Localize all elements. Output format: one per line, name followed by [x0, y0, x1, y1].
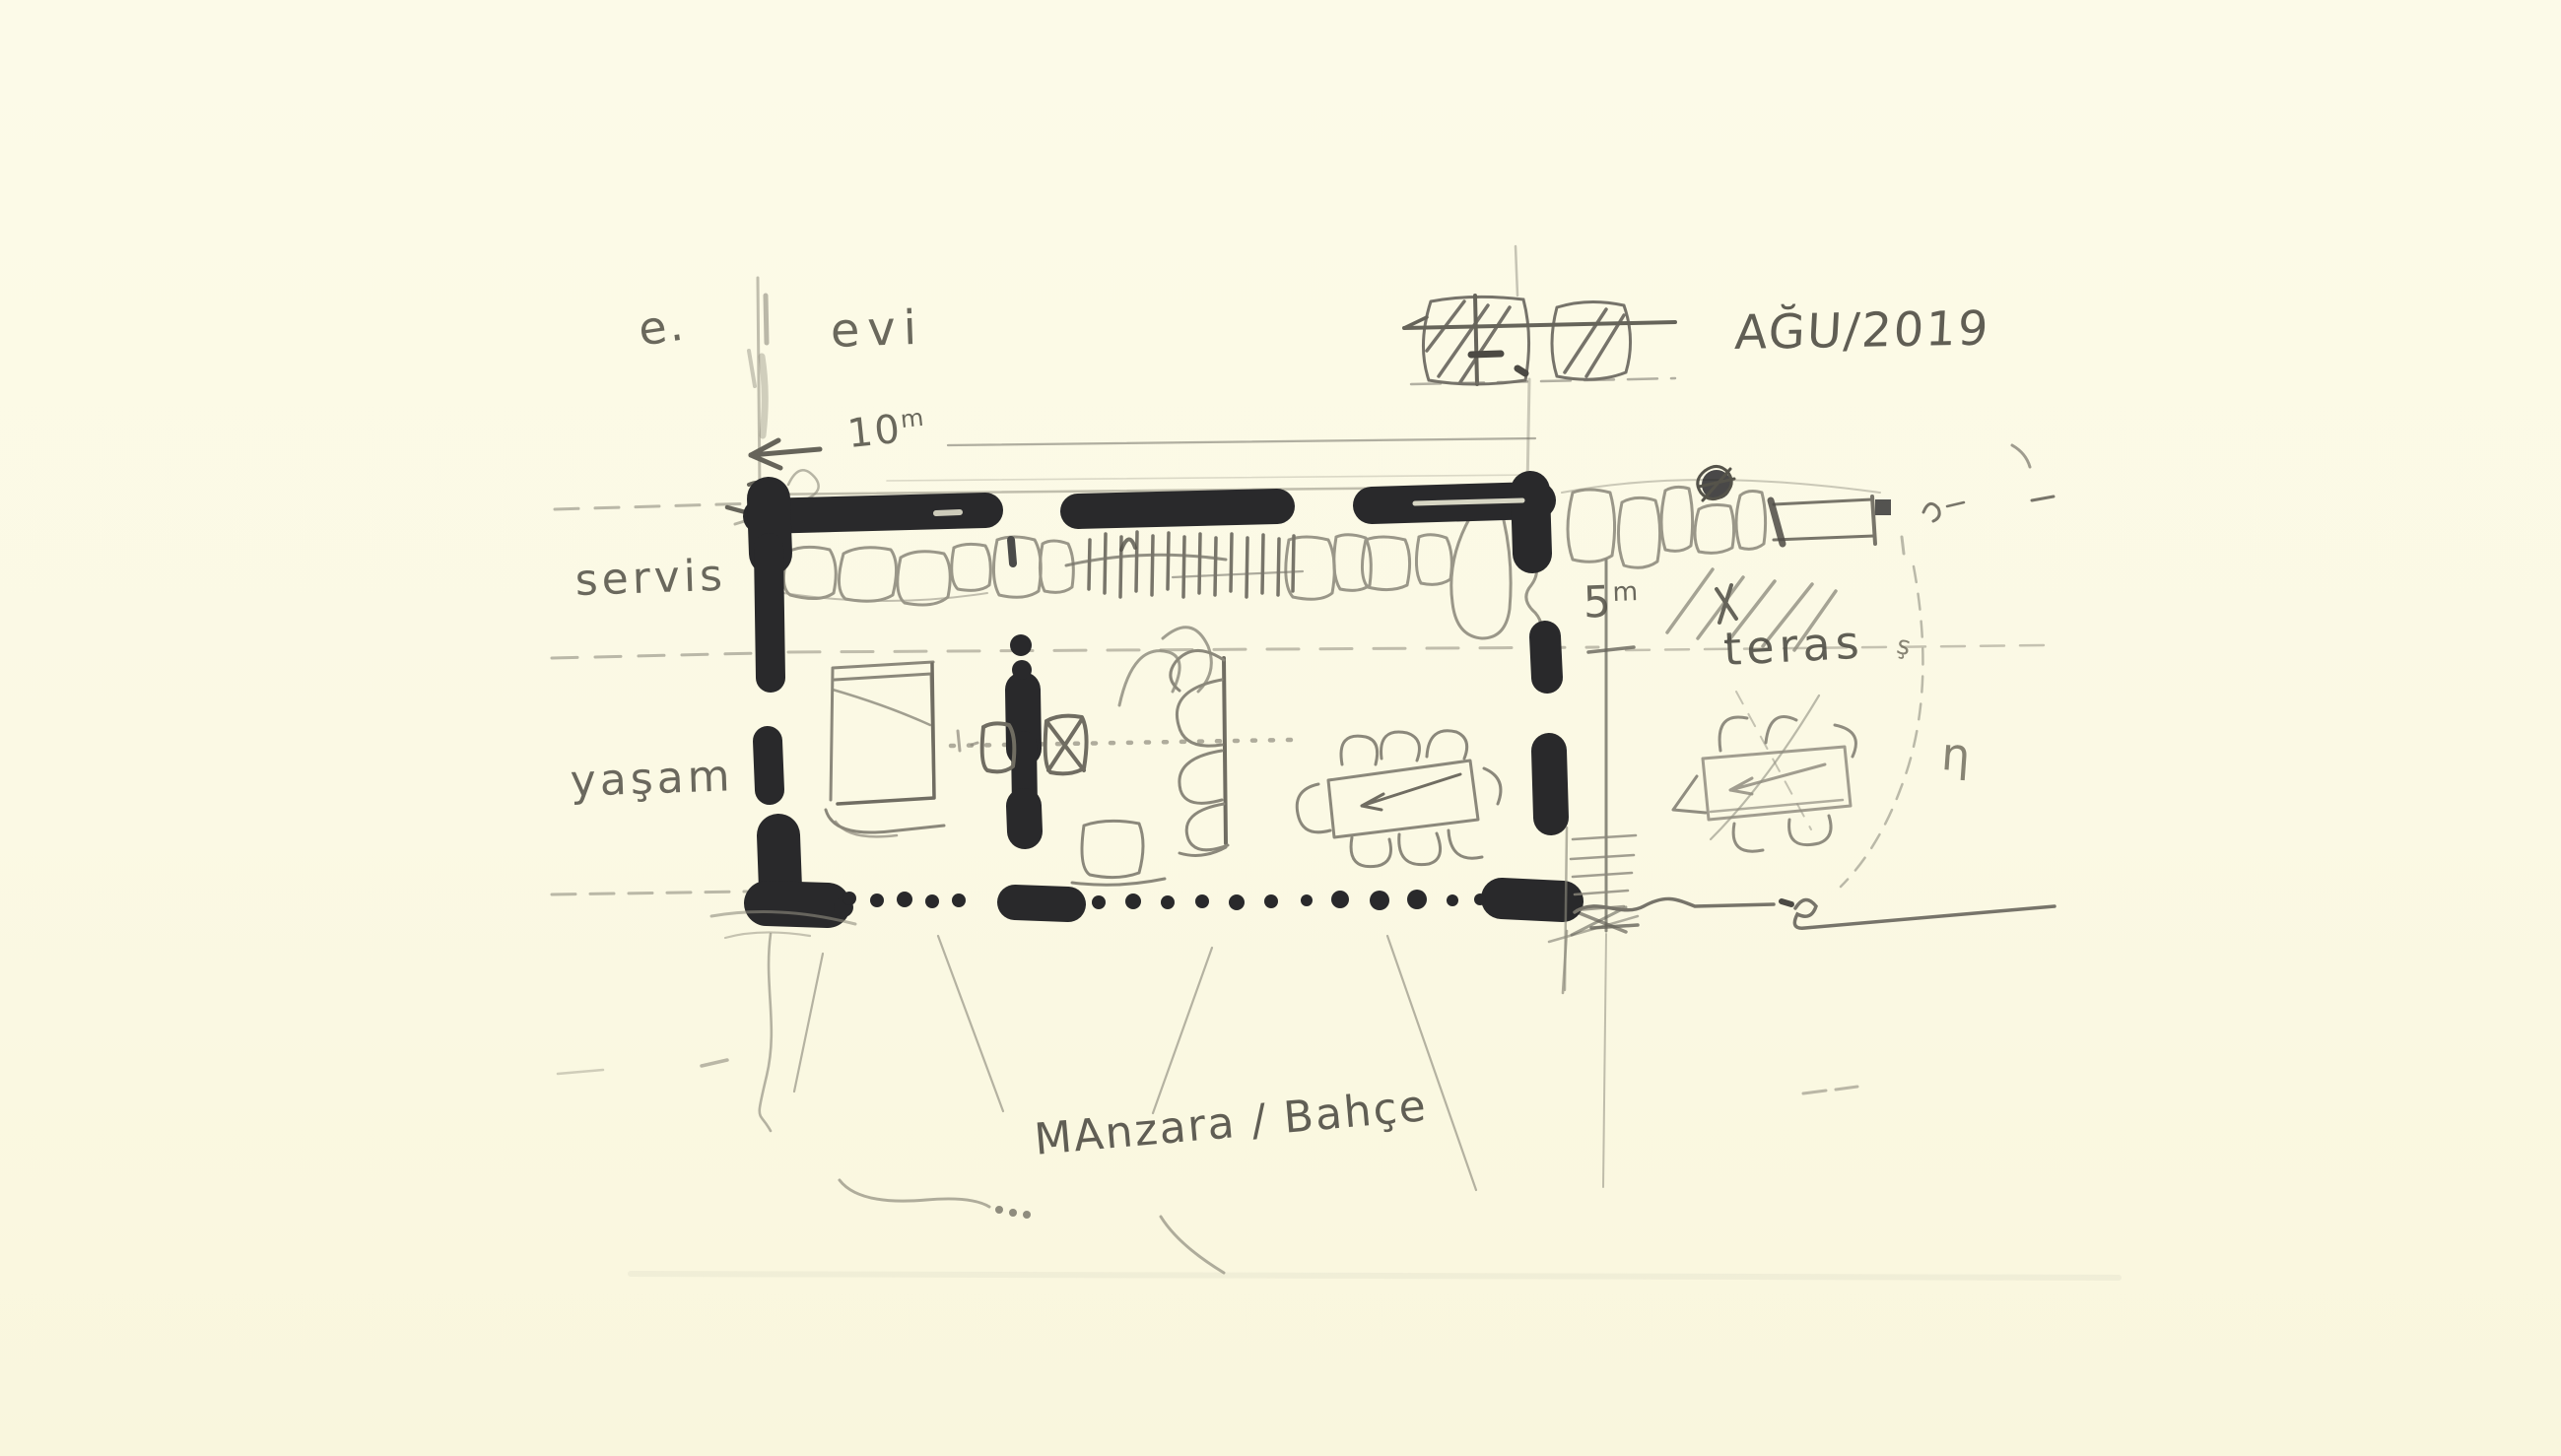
floor-plan-drawing [0, 0, 2561, 1456]
date-label: AĞU/2019 [1733, 304, 1990, 357]
bottom-right-line [1575, 898, 2055, 928]
room-label-yasam: yaşam [570, 755, 734, 804]
depth-dimension-value: 5 [1583, 577, 1614, 629]
view-lines [558, 912, 1857, 1274]
room-label-teras: teras [1722, 620, 1865, 672]
right-wall-pencil [1698, 445, 2054, 544]
hatched-boxes [1404, 246, 1675, 384]
depth-dimension-unit: m [1612, 576, 1639, 608]
margin-mark-letter: η [1940, 731, 1974, 778]
dining-set [1297, 731, 1501, 867]
width-dimension-value: 10 [845, 407, 904, 457]
terrace-area [1667, 537, 1922, 887]
room-label-servis: servis [574, 555, 727, 603]
width-dimension-label: 10m [845, 406, 926, 454]
stair-hatch [1066, 532, 1303, 597]
dimension-marks [747, 438, 1638, 1187]
title-letter: e. [636, 300, 688, 352]
marker-walls [761, 491, 1563, 905]
title-word: evi [830, 304, 925, 355]
depth-dimension-label: 5m [1583, 579, 1639, 626]
sketch-canvas: e. evi AĞU/2019 10m servis yaşam 5m tera… [0, 0, 2561, 1456]
width-dimension-unit: m [899, 404, 924, 433]
